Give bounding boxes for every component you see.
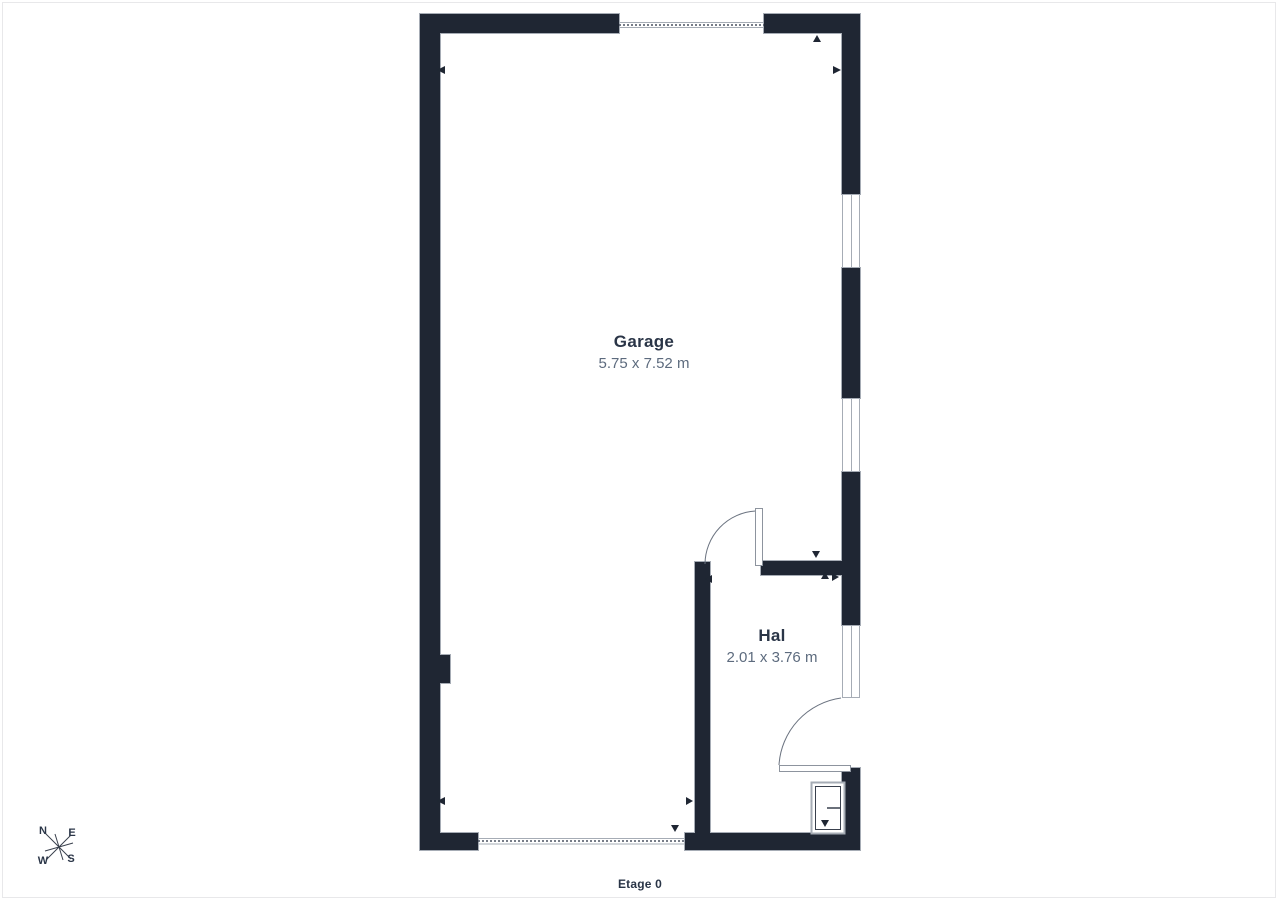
window-east-1 xyxy=(842,194,860,268)
floor-label: Etage 0 xyxy=(540,877,740,891)
room-label-garage: Garage 5.75 x 7.52 m xyxy=(544,332,744,372)
wall-west-pilaster xyxy=(440,655,450,683)
compass-east-label: E xyxy=(65,827,79,839)
wall-south-right xyxy=(685,833,860,850)
garage-door-north-icon xyxy=(619,23,764,28)
door-garage-hal-icon xyxy=(705,509,763,566)
arrow-up-icon xyxy=(813,35,821,42)
arrow-down-icon xyxy=(812,551,820,558)
room-dimensions: 2.01 x 3.76 m xyxy=(672,649,872,666)
floorplan-vector-overlay xyxy=(0,0,1280,905)
wall-west xyxy=(420,14,440,850)
garage-door-south-icon xyxy=(478,839,685,845)
canvas-frame xyxy=(2,2,1276,898)
meter-cabinet-icon xyxy=(812,783,845,834)
arrow-right-icon xyxy=(686,797,693,805)
arrow-right-icon xyxy=(833,66,841,74)
arrow-down-icon xyxy=(671,825,679,832)
door-entrance-icon xyxy=(779,698,851,772)
room-name: Garage xyxy=(544,332,744,352)
wall-hal-west-interior xyxy=(695,562,710,833)
wall-east-between-windows xyxy=(842,268,860,398)
floorplan-canvas: Garage 5.75 x 7.52 m Hal 2.01 x 3.76 m E… xyxy=(0,0,1280,905)
arrow-down-icon xyxy=(821,820,829,827)
wall-east-middle xyxy=(842,472,860,625)
wall-hal-north-interior xyxy=(761,561,842,575)
room-name: Hal xyxy=(672,626,872,646)
wall-east-upper xyxy=(842,33,860,194)
room-label-hal: Hal 2.01 x 3.76 m xyxy=(672,626,872,666)
wall-south-left xyxy=(420,833,478,850)
wall-north-left xyxy=(420,14,619,33)
compass-west-label: W xyxy=(36,855,50,867)
room-dimensions: 5.75 x 7.52 m xyxy=(544,355,744,372)
compass-south-label: S xyxy=(64,853,78,865)
window-east-2 xyxy=(842,398,860,472)
wall-north-right xyxy=(764,14,860,33)
compass-north-label: N xyxy=(36,825,50,837)
